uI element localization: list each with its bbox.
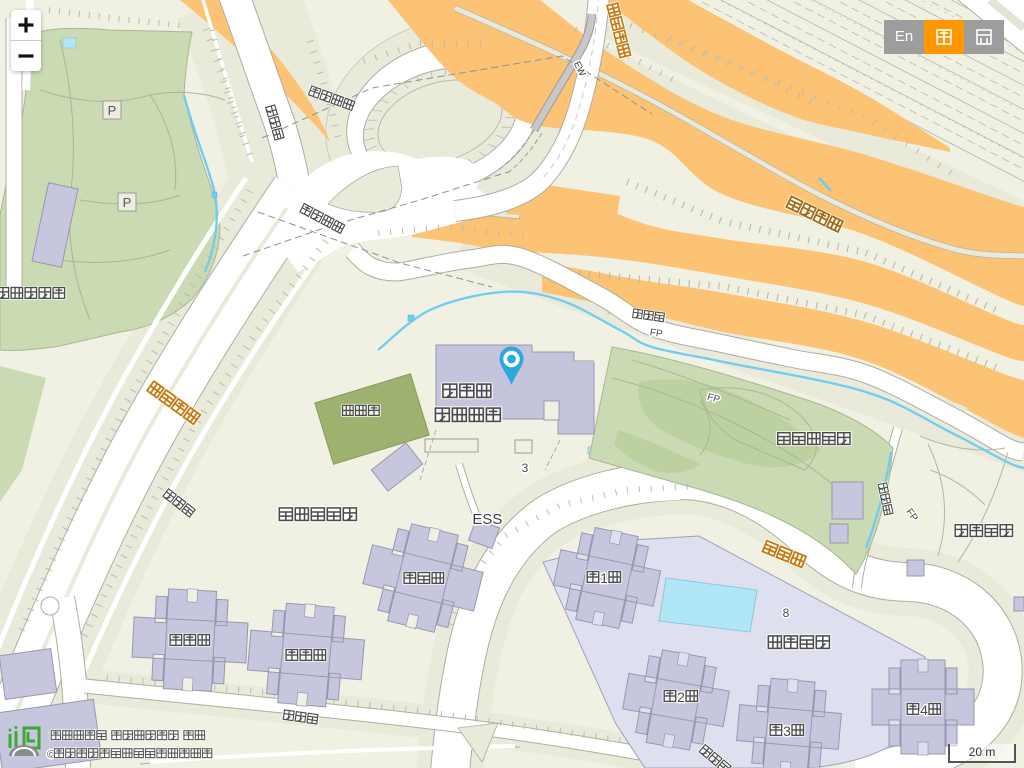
svg-text:8: 8 [783,606,790,620]
svg-text:4: 4 [920,702,928,718]
svg-text:1: 1 [600,570,608,586]
svg-text:ESS: ESS [472,511,502,528]
svg-text:P: P [108,103,117,118]
svg-text:2: 2 [677,689,685,705]
svg-text:3: 3 [783,723,791,739]
svg-text:3: 3 [522,461,529,475]
svg-text:P: P [123,195,132,210]
svg-text:FP: FP [649,327,664,340]
